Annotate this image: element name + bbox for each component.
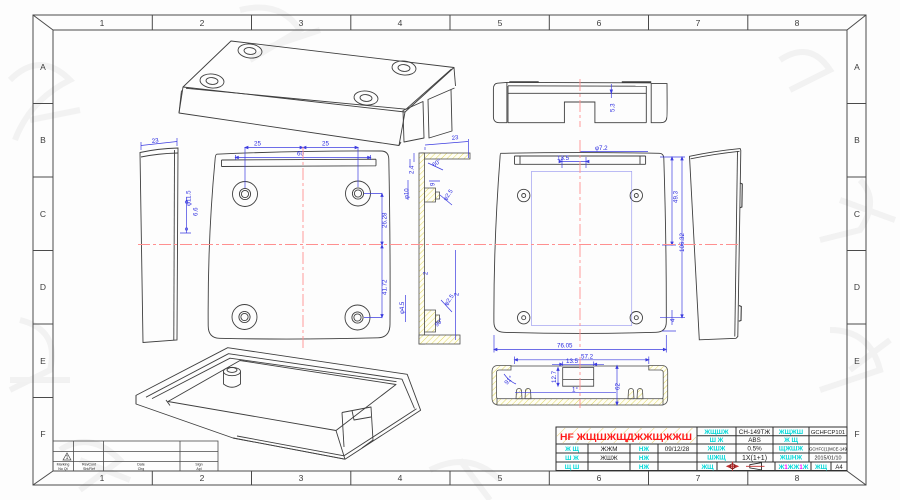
svg-text:Ш Ж: Ш Ж — [710, 437, 724, 444]
svg-text:GCHFCP101: GCHFCP101 — [811, 430, 845, 436]
svg-text:0.5%: 0.5% — [747, 446, 762, 453]
svg-text:6.6: 6.6 — [193, 207, 200, 216]
svg-text:Ш Ж: Ш Ж — [565, 455, 579, 462]
svg-text:GCHFC(1)MCE-149: GCHFC(1)MCE-149 — [809, 447, 847, 452]
svg-text:D: D — [854, 282, 860, 292]
svg-text:F: F — [854, 429, 859, 439]
svg-text:ЖЩЖШ: ЖЩЖШ — [778, 429, 803, 436]
svg-text:Apl: Apl — [196, 467, 201, 471]
svg-text:HF ЖЩШЖЩДЖЖЩЖЖШ: HF ЖЩШЖЩДЖЖЩЖЖШ — [560, 432, 692, 443]
svg-text:D: D — [40, 282, 46, 292]
svg-text:E: E — [854, 356, 860, 366]
svg-text:4: 4 — [398, 473, 403, 483]
svg-text:B: B — [40, 135, 46, 145]
svg-text:B: B — [854, 135, 860, 145]
svg-text:5: 5 — [498, 18, 503, 28]
svg-text:A: A — [854, 62, 860, 72]
svg-text:НЖ: НЖ — [639, 446, 650, 453]
svg-text:Щ Ш: Щ Ш — [565, 464, 580, 471]
svg-text:ЖШНЖ: ЖШНЖ — [779, 455, 803, 462]
svg-text:7: 7 — [696, 473, 701, 483]
svg-text:CH-149ТЖ: CH-149ТЖ — [739, 429, 771, 436]
svg-text:НЖ: НЖ — [639, 455, 650, 462]
svg-text:41.72: 41.72 — [382, 279, 389, 295]
svg-text:E: E — [40, 356, 46, 366]
svg-text:2.4: 2.4 — [410, 165, 416, 174]
svg-text:ABS: ABS — [748, 437, 761, 444]
svg-text:C: C — [854, 209, 860, 219]
svg-text:Chg: Chg — [138, 467, 145, 471]
svg-text:2: 2 — [200, 473, 205, 483]
svg-text:4: 4 — [398, 18, 403, 28]
svg-text:2: 2 — [200, 18, 205, 28]
svg-text:C: C — [40, 209, 46, 219]
svg-text:No Qt: No Qt — [58, 467, 67, 471]
svg-text:φ11.5: φ11.5 — [186, 190, 193, 206]
svg-text:A4: A4 — [835, 465, 843, 471]
svg-text:Ж Щ: Ж Щ — [783, 437, 798, 444]
svg-text:6: 6 — [597, 473, 602, 483]
svg-text:ЩЖШЖ: ЩЖШЖ — [779, 446, 803, 453]
svg-text:13.5: 13.5 — [557, 155, 570, 162]
svg-text:3: 3 — [299, 473, 304, 483]
svg-text:8: 8 — [795, 18, 800, 28]
svg-text:φ4.5: φ4.5 — [400, 301, 406, 314]
svg-text:76.05: 76.05 — [557, 343, 573, 350]
svg-text:7: 7 — [696, 18, 701, 28]
svg-text:1X(1+1): 1X(1+1) — [742, 455, 767, 462]
svg-text:ЖШЖ: ЖШЖ — [707, 446, 726, 453]
svg-text:A: A — [40, 62, 46, 72]
svg-text:8: 8 — [795, 473, 800, 483]
svg-text:2015/01/10: 2015/01/10 — [815, 456, 842, 462]
svg-text:Ж Щ: Ж Щ — [564, 446, 579, 453]
svg-text:13.5: 13.5 — [566, 358, 579, 365]
svg-text:ШЖЩ: ШЖЩ — [707, 455, 726, 462]
svg-text:4: 4 — [670, 318, 677, 322]
svg-text:ЖШЖ: ЖШЖ — [600, 455, 618, 462]
svg-text:ЖЖМ: ЖЖМ — [601, 446, 618, 453]
svg-text:ЖЩ: ЖЩ — [814, 464, 828, 471]
svg-text:φ7.2: φ7.2 — [595, 145, 608, 152]
svg-text:ЖЩ: ЖЩ — [700, 464, 714, 471]
svg-text:62: 62 — [615, 383, 622, 390]
svg-text:106.32: 106.32 — [679, 233, 686, 252]
svg-text:09/12/28: 09/12/28 — [665, 446, 690, 453]
svg-text:5.3: 5.3 — [610, 103, 617, 112]
svg-text:φ10: φ10 — [405, 188, 411, 199]
svg-text:1°: 1° — [572, 387, 578, 394]
svg-text:25: 25 — [322, 141, 329, 148]
svg-text:26.28: 26.28 — [382, 212, 389, 228]
svg-text:НЖ: НЖ — [639, 464, 650, 471]
svg-text:F: F — [40, 429, 45, 439]
svg-text:5: 5 — [498, 473, 503, 483]
svg-text:25: 25 — [254, 141, 261, 148]
svg-text:1: 1 — [100, 473, 105, 483]
svg-text:ЖЩШЖ: ЖЩШЖ — [703, 429, 728, 436]
svg-text:Sht/Ref: Sht/Ref — [83, 467, 95, 471]
svg-text:12.7: 12.7 — [551, 370, 558, 383]
svg-text:1: 1 — [100, 18, 105, 28]
svg-text:3: 3 — [299, 18, 304, 28]
svg-text:1: 1 — [66, 455, 69, 461]
svg-text:57.2: 57.2 — [581, 354, 594, 361]
svg-text:6: 6 — [597, 18, 602, 28]
svg-text:49.3: 49.3 — [673, 190, 680, 203]
svg-text:Ж1ЖЖ1Ж: Ж1ЖЖ1Ж — [778, 464, 809, 471]
